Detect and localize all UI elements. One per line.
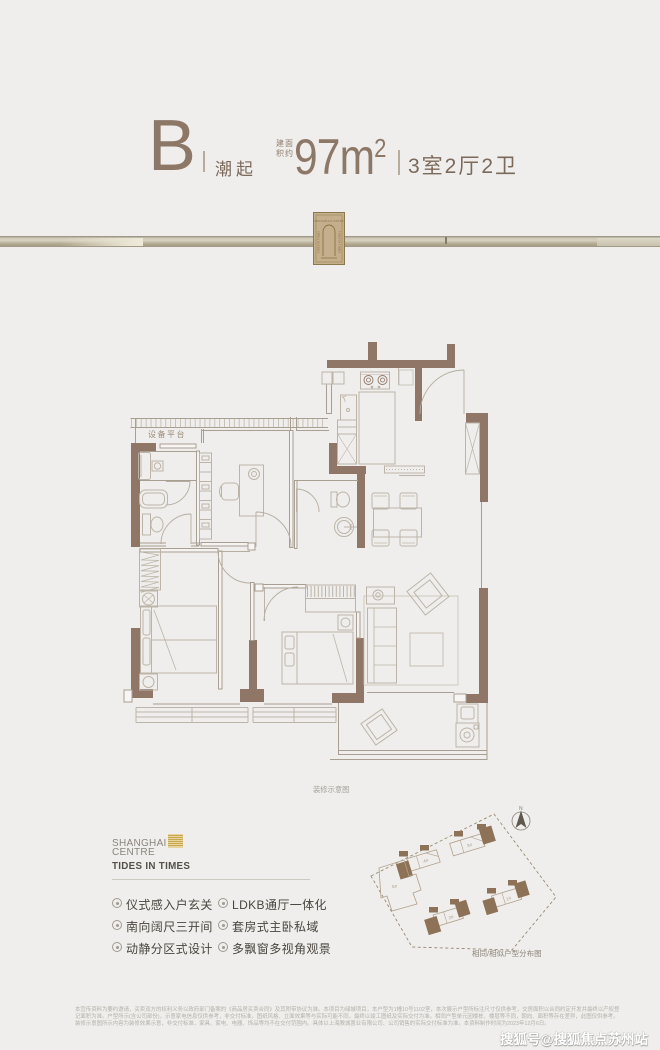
svg-text:1#: 1# [505, 895, 512, 901]
svg-text:4#: 4# [423, 858, 430, 864]
svg-text:5#: 5# [392, 884, 398, 889]
svg-text:N: N [519, 806, 523, 812]
svg-text:2#: 2# [448, 914, 455, 920]
svg-text:3#: 3# [466, 842, 473, 848]
